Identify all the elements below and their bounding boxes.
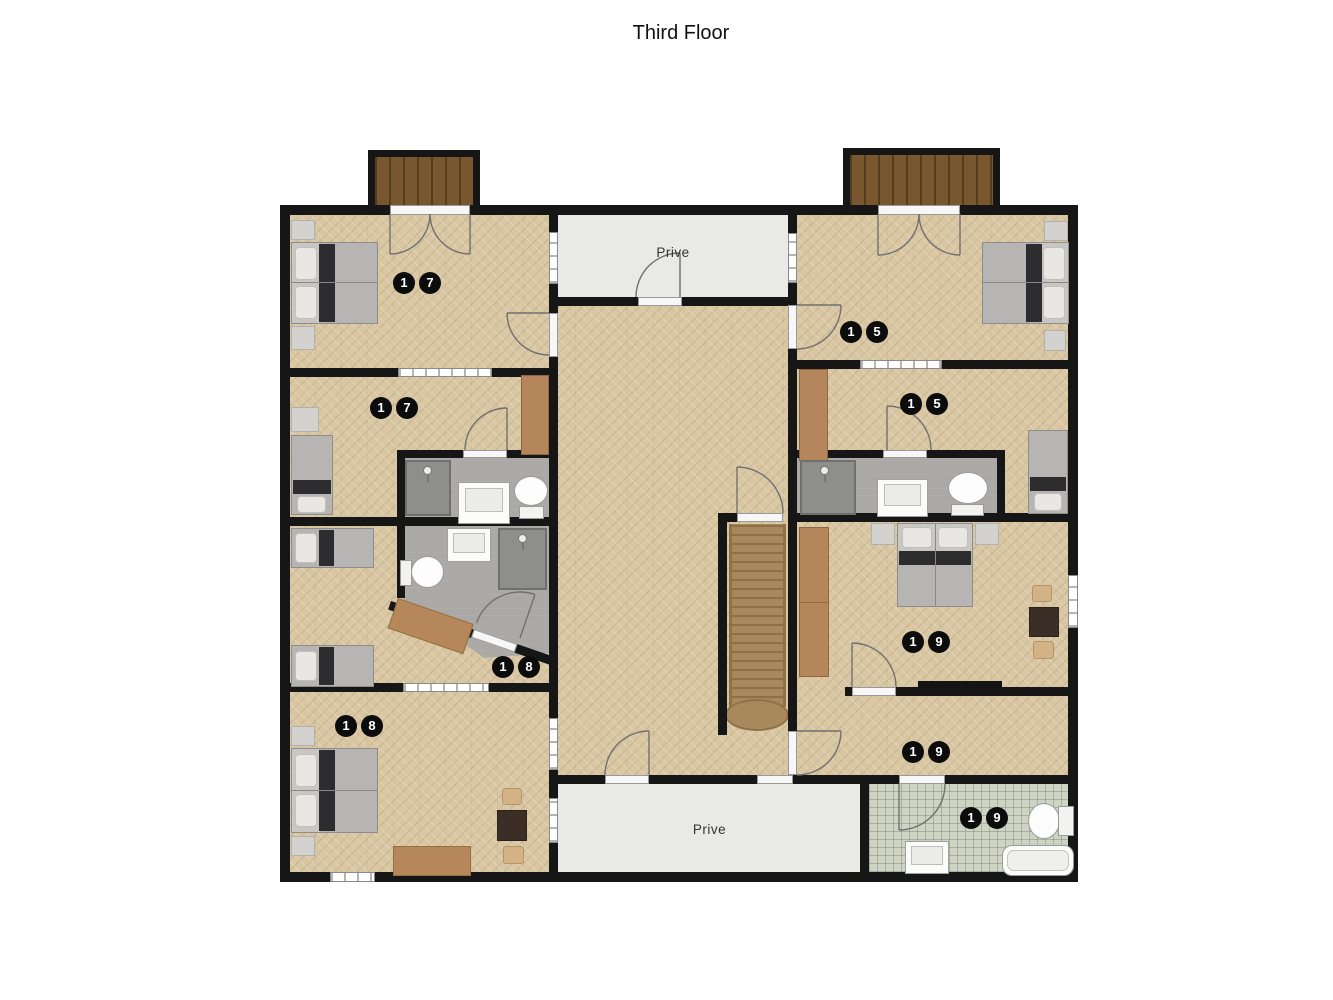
bed-divider	[292, 790, 377, 791]
shower-stem	[824, 475, 826, 482]
staircase-landing	[725, 699, 789, 731]
threshold-room15a	[788, 305, 797, 349]
badge-digit: 5	[866, 321, 888, 343]
shower-stem	[427, 475, 429, 482]
room-badge-19-bath: 1 9	[960, 807, 1008, 829]
window-19a-east	[1068, 575, 1078, 628]
badge-digit: 7	[419, 272, 441, 294]
sink-basin	[884, 484, 921, 506]
bed-pillow	[295, 754, 317, 787]
wall-bath17-left	[397, 450, 405, 526]
bed-pillow	[1043, 286, 1065, 319]
window-15a-15b	[860, 360, 942, 369]
square-table-19a	[1029, 607, 1059, 637]
badge-digit: 5	[926, 393, 948, 415]
bed-stripe	[1030, 477, 1066, 491]
badge-digit: 7	[396, 397, 418, 419]
door-bath17	[465, 408, 507, 450]
bed-divider	[292, 282, 377, 283]
badge-digit: 1	[960, 807, 982, 829]
bed-stripe	[319, 244, 335, 322]
room-badge-19-main: 1 9	[902, 631, 950, 653]
badge-digit: 1	[370, 397, 392, 419]
double-bed-18b	[291, 748, 378, 833]
wall-outer-left	[280, 205, 290, 882]
staircase	[729, 524, 786, 707]
window-prive-18b	[549, 798, 558, 843]
bed-pillow	[938, 527, 968, 548]
toilet-19-tank	[1058, 806, 1074, 836]
nightstand	[291, 726, 315, 746]
bed-stripe	[293, 480, 331, 494]
door-bath19	[899, 784, 945, 830]
bed-stripe	[319, 530, 334, 566]
stool	[1033, 641, 1054, 659]
wall-stairwell-left	[718, 513, 727, 735]
door-stairs	[737, 467, 783, 513]
bed-pillow	[295, 794, 317, 827]
single-bed-15b	[1028, 430, 1068, 514]
badge-digit: 1	[902, 741, 924, 763]
wardrobe-15b	[799, 369, 828, 461]
sink-18	[447, 528, 491, 562]
single-bed-17b	[291, 435, 333, 515]
threshold-prive-bottom	[605, 775, 649, 784]
room-badge-18-bottom: 1 8	[335, 715, 383, 737]
shower-15	[800, 460, 856, 515]
nightstand	[1044, 221, 1068, 241]
nightstand	[291, 407, 319, 432]
toilet-17-tank	[519, 506, 544, 519]
door-prive-bottom	[605, 731, 649, 775]
bed-pillow	[297, 496, 326, 513]
sink-19	[905, 841, 949, 874]
threshold-bath19	[899, 775, 945, 784]
wall-17b-18a	[289, 517, 549, 526]
toilet-18-bowl	[411, 556, 444, 588]
bed-pillow	[295, 286, 317, 319]
sink-15	[877, 479, 928, 517]
bathtub-19	[1002, 845, 1074, 876]
threshold-stairs	[737, 513, 783, 522]
threshold-prive-top	[638, 297, 682, 306]
door-room17a	[507, 313, 549, 355]
threshold-room17a	[549, 313, 558, 357]
wall-prive-bath19	[860, 784, 869, 882]
nightstand	[291, 220, 315, 240]
tv-console	[918, 681, 1002, 688]
badge-digit: 1	[900, 393, 922, 415]
door-room19b	[797, 731, 841, 775]
nightstand	[291, 326, 315, 350]
room-badge-15-top: 1 5	[840, 321, 888, 343]
door-19a-19b	[852, 643, 896, 687]
stool	[502, 788, 522, 805]
bed-divider	[935, 524, 936, 606]
room-badge-18-mid: 1 8	[492, 656, 540, 678]
balcony-right	[843, 148, 1000, 212]
room-badge-17-top: 1 7	[393, 272, 441, 294]
door-room15a	[797, 305, 841, 349]
room-badge-19-lower: 1 9	[902, 741, 950, 763]
room-badge-15-mid: 1 5	[900, 393, 948, 415]
double-bed-15a	[982, 242, 1069, 324]
nightstand	[975, 523, 999, 545]
wardrobe-divider	[800, 602, 828, 603]
badge-digit: 1	[902, 631, 924, 653]
threshold-hall-south	[757, 775, 793, 784]
toilet-15-tank	[951, 504, 984, 516]
badge-digit: 9	[928, 741, 950, 763]
bathtub-inner	[1007, 850, 1069, 871]
badge-digit: 9	[986, 807, 1008, 829]
bed-pillow	[295, 651, 317, 681]
bed-stripe	[319, 647, 334, 685]
threshold-room19b	[788, 731, 797, 775]
french-door-balcony-right	[878, 214, 960, 255]
window-17a-17b	[398, 368, 492, 377]
shower-stem	[522, 543, 524, 550]
threshold-19a-19b	[852, 687, 896, 696]
badge-digit: 1	[492, 656, 514, 678]
shower-17	[405, 460, 451, 516]
wall-bath15-right	[997, 450, 1005, 521]
sink-17	[458, 482, 510, 524]
badge-digit: 8	[518, 656, 540, 678]
bed-pillow	[295, 533, 317, 563]
bed-pillow	[1034, 493, 1062, 511]
nightstand	[1044, 330, 1066, 351]
stool	[1032, 585, 1052, 602]
table-18b	[393, 846, 471, 876]
page-title: Third Floor	[566, 22, 796, 45]
badge-digit: 1	[335, 715, 357, 737]
window-hall-17a	[549, 232, 558, 284]
toilet-19-bowl	[1028, 803, 1060, 839]
sink-basin	[911, 846, 943, 865]
wall-hall-right	[788, 205, 797, 784]
toilet-17-bowl	[514, 476, 548, 506]
toilet-15-bowl	[948, 472, 988, 504]
bed-divider	[983, 282, 1068, 283]
balcony-left	[368, 150, 480, 212]
shower-18	[498, 528, 547, 590]
sink-basin	[465, 488, 503, 512]
single-bed-18a-2	[291, 645, 374, 687]
bed-pillow	[902, 527, 932, 548]
room-badge-17-mid: 1 7	[370, 397, 418, 419]
wardrobe-19a	[799, 527, 829, 677]
window-hall-15a	[788, 233, 797, 283]
bed-stripe	[1026, 244, 1042, 322]
window-hall-18b	[549, 718, 558, 770]
wardrobe-17b	[521, 375, 549, 455]
badge-digit: 1	[393, 272, 415, 294]
shower-head-icon	[423, 466, 432, 475]
prive-top-label: Prive	[558, 245, 788, 260]
badge-digit: 8	[361, 715, 383, 737]
window-18b-south	[330, 872, 375, 882]
sink-basin	[453, 533, 485, 553]
shower-head-icon	[518, 534, 527, 543]
nightstand	[871, 523, 895, 545]
window-18a-18b	[403, 683, 489, 692]
bed-pillow	[295, 247, 317, 280]
threshold-bath15	[883, 450, 927, 458]
badge-digit: 1	[840, 321, 862, 343]
floorplan-canvas: Third Floor	[0, 0, 1333, 1000]
badge-digit: 9	[928, 631, 950, 653]
double-bed-17a	[291, 242, 378, 324]
single-bed-18a-1	[291, 528, 374, 568]
nightstand	[291, 836, 315, 856]
threshold-bath17	[463, 450, 507, 458]
square-table-18b	[497, 810, 527, 841]
shower-head-icon	[820, 466, 829, 475]
stool	[503, 846, 524, 864]
double-bed-19a	[897, 523, 973, 607]
bed-pillow	[1043, 247, 1065, 280]
french-door-balcony-left	[390, 214, 470, 256]
prive-bottom-label: Prive	[558, 822, 861, 837]
